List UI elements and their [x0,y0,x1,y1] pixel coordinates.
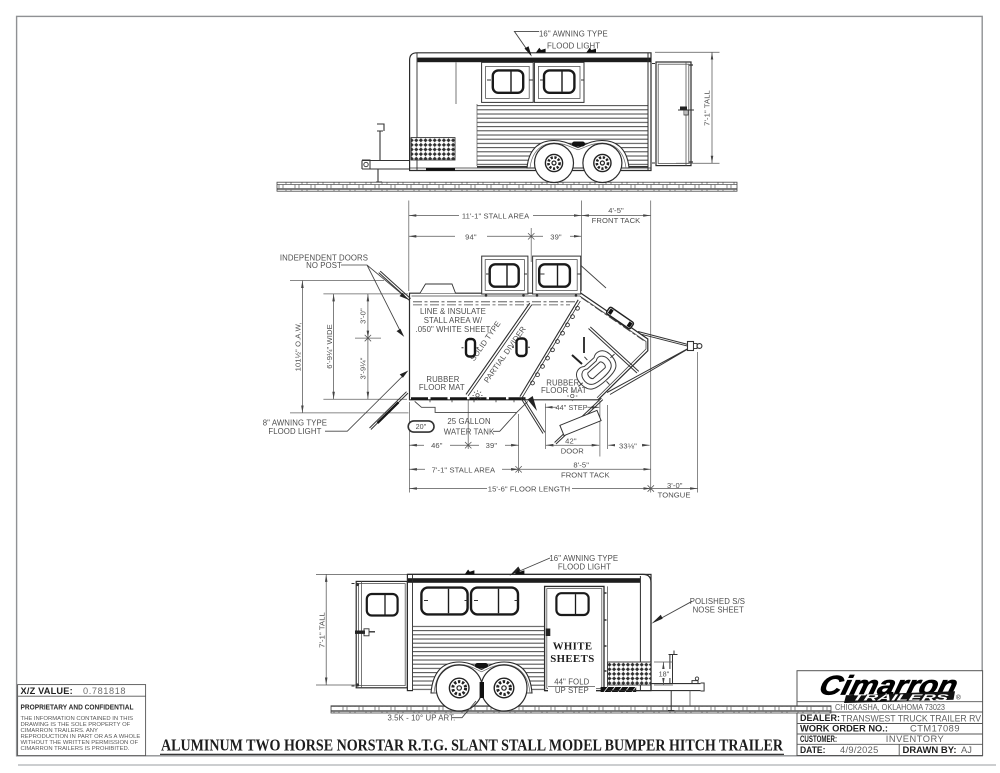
svg-text:ALUMINUM TWO HORSE NORSTAR R.T: ALUMINUM TWO HORSE NORSTAR R.T.G. SLANT … [161,735,784,754]
svg-text:11'-1" STALL AREA: 11'-1" STALL AREA [462,211,530,220]
svg-text:DEALER:: DEALER: [800,713,840,723]
svg-text:7'-1" TALL: 7'-1" TALL [703,90,712,126]
svg-text:DOOR: DOOR [561,447,585,456]
svg-text:NOSE SHEET: NOSE SHEET [693,606,744,615]
svg-text:.050" WHITE SHEET: .050" WHITE SHEET [415,325,490,334]
svg-text:6'-9¼" WIDE: 6'-9¼" WIDE [325,324,334,369]
svg-text:16" AWNING TYPE: 16" AWNING TYPE [539,30,608,39]
svg-text:FLOOD LIGHT: FLOOD LIGHT [268,427,321,436]
svg-text:AJ: AJ [961,745,972,755]
svg-text:101½" O.A.W,: 101½" O.A.W, [294,322,303,371]
svg-text:FLOOD LIGHT: FLOOD LIGHT [547,42,600,51]
svg-text:WATER TANK: WATER TANK [444,428,495,437]
svg-text:CTM17089: CTM17089 [910,724,960,734]
svg-text:20": 20" [416,422,427,431]
svg-text:FLOOR MAT: FLOOR MAT [419,383,465,392]
svg-text:46": 46" [431,441,443,450]
svg-text:WHITE: WHITE [553,641,593,653]
svg-text:18": 18" [659,670,670,679]
svg-text:DATE:: DATE: [800,745,826,755]
svg-text:44" STEP: 44" STEP [556,403,588,412]
svg-text:X/Z VALUE:: X/Z VALUE: [21,686,73,696]
svg-text:3.5K - 10° UP ART.: 3.5K - 10° UP ART. [387,714,455,723]
svg-text:TRANSWEST TRUCK TRAILER RV: TRANSWEST TRUCK TRAILER RV [841,713,982,723]
svg-text:FLOOR MAT: FLOOR MAT [541,386,587,395]
svg-text:FRONT TACK: FRONT TACK [561,470,610,479]
svg-text:4/9/2025: 4/9/2025 [840,745,879,755]
svg-text:NO POST: NO POST [306,261,342,270]
svg-text:®: ® [956,694,961,702]
svg-text:33⅛": 33⅛" [619,441,637,450]
svg-text:FLOOD LIGHT: FLOOD LIGHT [558,562,611,571]
svg-text:INVENTORY: INVENTORY [886,734,944,744]
svg-text:UP STEP: UP STEP [555,686,589,695]
svg-text:8" AWNING TYPE: 8" AWNING TYPE [263,418,327,427]
svg-text:7'-1" TALL: 7'-1" TALL [318,612,327,648]
svg-text:39": 39" [486,441,498,450]
svg-text:0.781818: 0.781818 [83,686,126,696]
svg-text:CHICKASHA, OKLAHOMA 73023: CHICKASHA, OKLAHOMA 73023 [835,702,945,712]
svg-text:39": 39" [550,232,562,241]
svg-text:4'-5": 4'-5" [608,206,624,215]
svg-text:DRAWN BY:: DRAWN BY: [903,745,957,755]
svg-text:PROPRIETARY AND CONFIDENTIAL: PROPRIETARY AND CONFIDENTIAL [21,703,134,712]
svg-text:CIMARRON TRAILERS IS PROHIBITE: CIMARRON TRAILERS IS PROHIBITED. [21,746,130,752]
svg-text:WORK ORDER NO.:: WORK ORDER NO.: [800,724,888,734]
svg-text:TONGUE: TONGUE [658,491,691,500]
svg-text:CUSTOMER:: CUSTOMER: [800,734,837,744]
svg-text:94": 94" [465,232,477,241]
svg-text:8'-5": 8'-5" [573,460,589,469]
svg-text:25 GALLON: 25 GALLON [447,417,490,426]
svg-text:STALL AREA W/: STALL AREA W/ [424,316,483,325]
svg-text:3'-9¼": 3'-9¼" [359,357,368,379]
svg-text:3'-0": 3'-0" [667,481,683,490]
svg-text:42": 42" [565,437,577,446]
svg-text:SHEETS: SHEETS [550,653,594,665]
svg-text:3'-0": 3'-0" [359,308,368,324]
svg-text:15'-6" FLOOR LENGTH: 15'-6" FLOOR LENGTH [488,484,570,493]
svg-text:7'-1" STALL AREA: 7'-1" STALL AREA [432,465,496,474]
svg-text:LINE & INSULATE: LINE & INSULATE [420,307,486,316]
svg-text:FRONT TACK: FRONT TACK [592,216,641,225]
